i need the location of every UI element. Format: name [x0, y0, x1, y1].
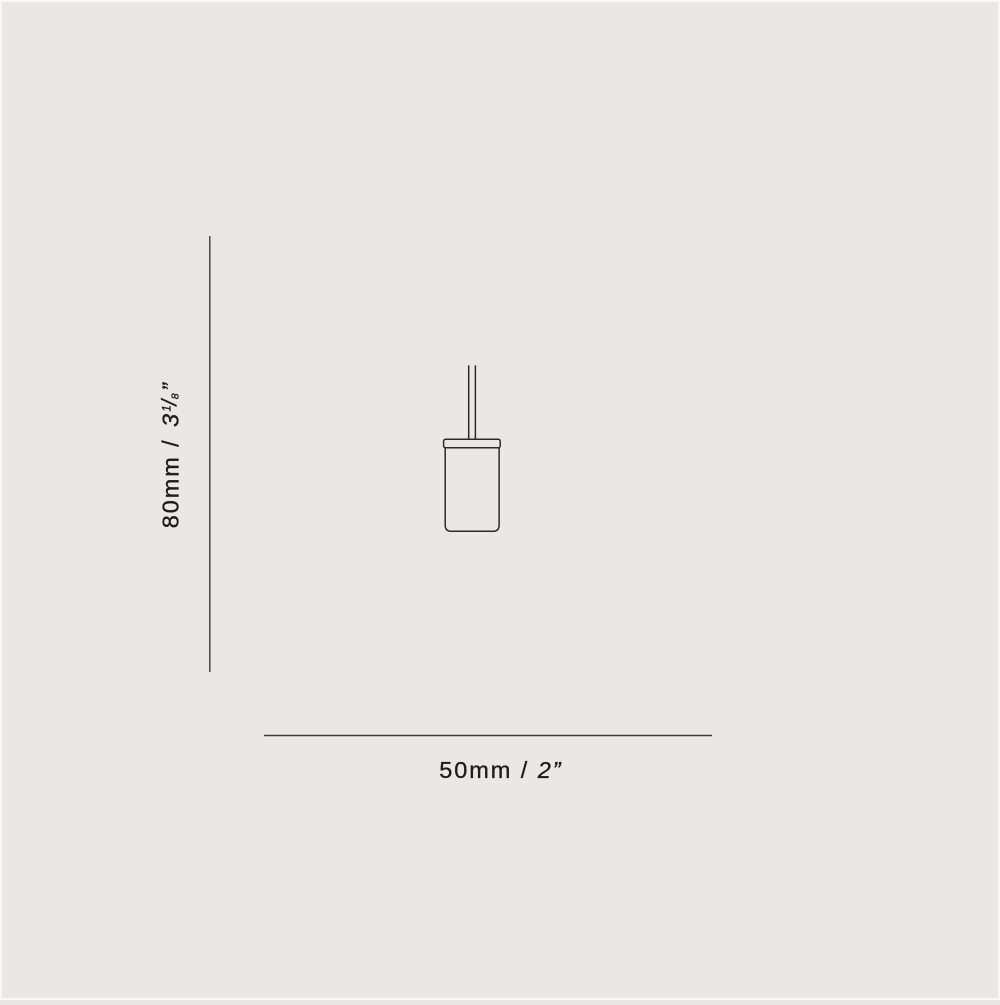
svg-text:50mm / 2”: 50mm / 2”: [439, 757, 562, 783]
svg-text:80mm / 31/8”: 80mm / 31/8”: [158, 381, 184, 528]
